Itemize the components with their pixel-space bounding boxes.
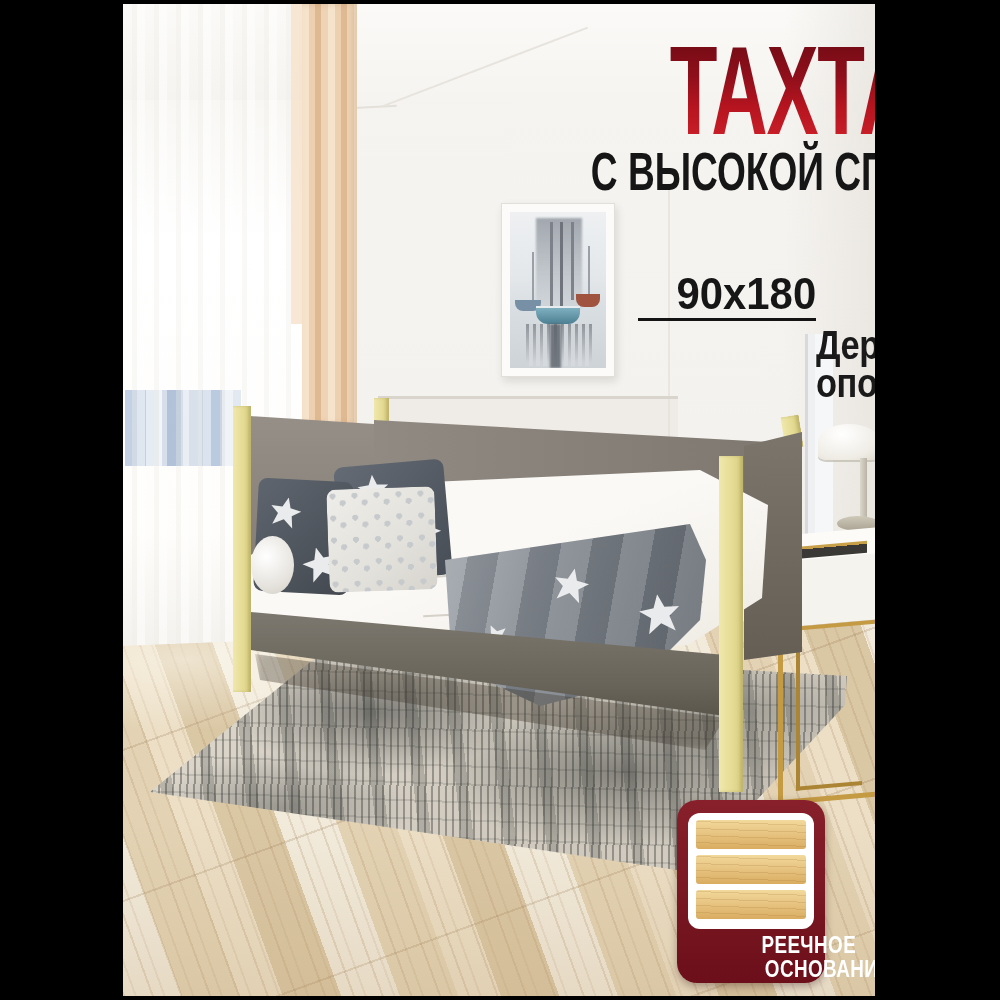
- chair-rail-line: [378, 396, 678, 399]
- painting-boat: [576, 294, 600, 307]
- badge-line2: ОСНОВАНИЕ: [765, 957, 875, 981]
- flower-motif: [266, 494, 304, 532]
- wood-slats-icon: [688, 813, 814, 929]
- bed-post-front-left: [233, 406, 251, 692]
- feature-line2: опоры: [816, 364, 875, 402]
- painting-mast: [560, 222, 563, 314]
- feature-badge: РЕЕЧНОЕ ОСНОВАНИЕ: [677, 800, 825, 983]
- painting-boat: [536, 308, 580, 324]
- wood-slat: [696, 855, 806, 884]
- bolster-pillow: [251, 536, 294, 594]
- room-photo: РЕЕЧНОЕ ОСНОВАНИЕ ТАХТА МЯГКАЯ С ВЫСОКОЙ…: [123, 4, 875, 996]
- flower-motif: [636, 591, 683, 638]
- feature-line1: Деревянные: [816, 326, 875, 364]
- painting-reflection: [550, 324, 561, 368]
- size-label: 90x180: [676, 271, 816, 316]
- painting-mast: [532, 252, 534, 304]
- divider-line: [638, 318, 816, 321]
- curtain-panel: [302, 4, 357, 424]
- wood-slat: [696, 890, 806, 919]
- gold-frame-back: [796, 643, 862, 791]
- badge-line1: РЕЕЧНОЕ: [761, 933, 856, 957]
- table-lamp-shade: [818, 424, 875, 460]
- table-lamp-stem: [860, 458, 867, 520]
- flower-motif: [550, 565, 593, 608]
- wood-slat: [696, 820, 806, 849]
- title-text: ТАХТА МЯГКАЯ: [670, 28, 875, 154]
- painting-mast: [550, 222, 553, 308]
- bed-post-front-right: [719, 456, 743, 792]
- painting-canvas: [510, 212, 606, 368]
- painting-mast: [571, 222, 574, 300]
- product-image: РЕЕЧНОЕ ОСНОВАНИЕ ТАХТА МЯГКАЯ С ВЫСОКОЙ…: [0, 0, 1000, 1000]
- subtitle-text: С ВЫСОКОЙ СПИНКОЙ: [591, 145, 875, 198]
- pillow-damask: [326, 486, 438, 593]
- wall-painting: [501, 203, 615, 377]
- badge-label: РЕЕЧНОЕ ОСНОВАНИЕ: [677, 933, 825, 957]
